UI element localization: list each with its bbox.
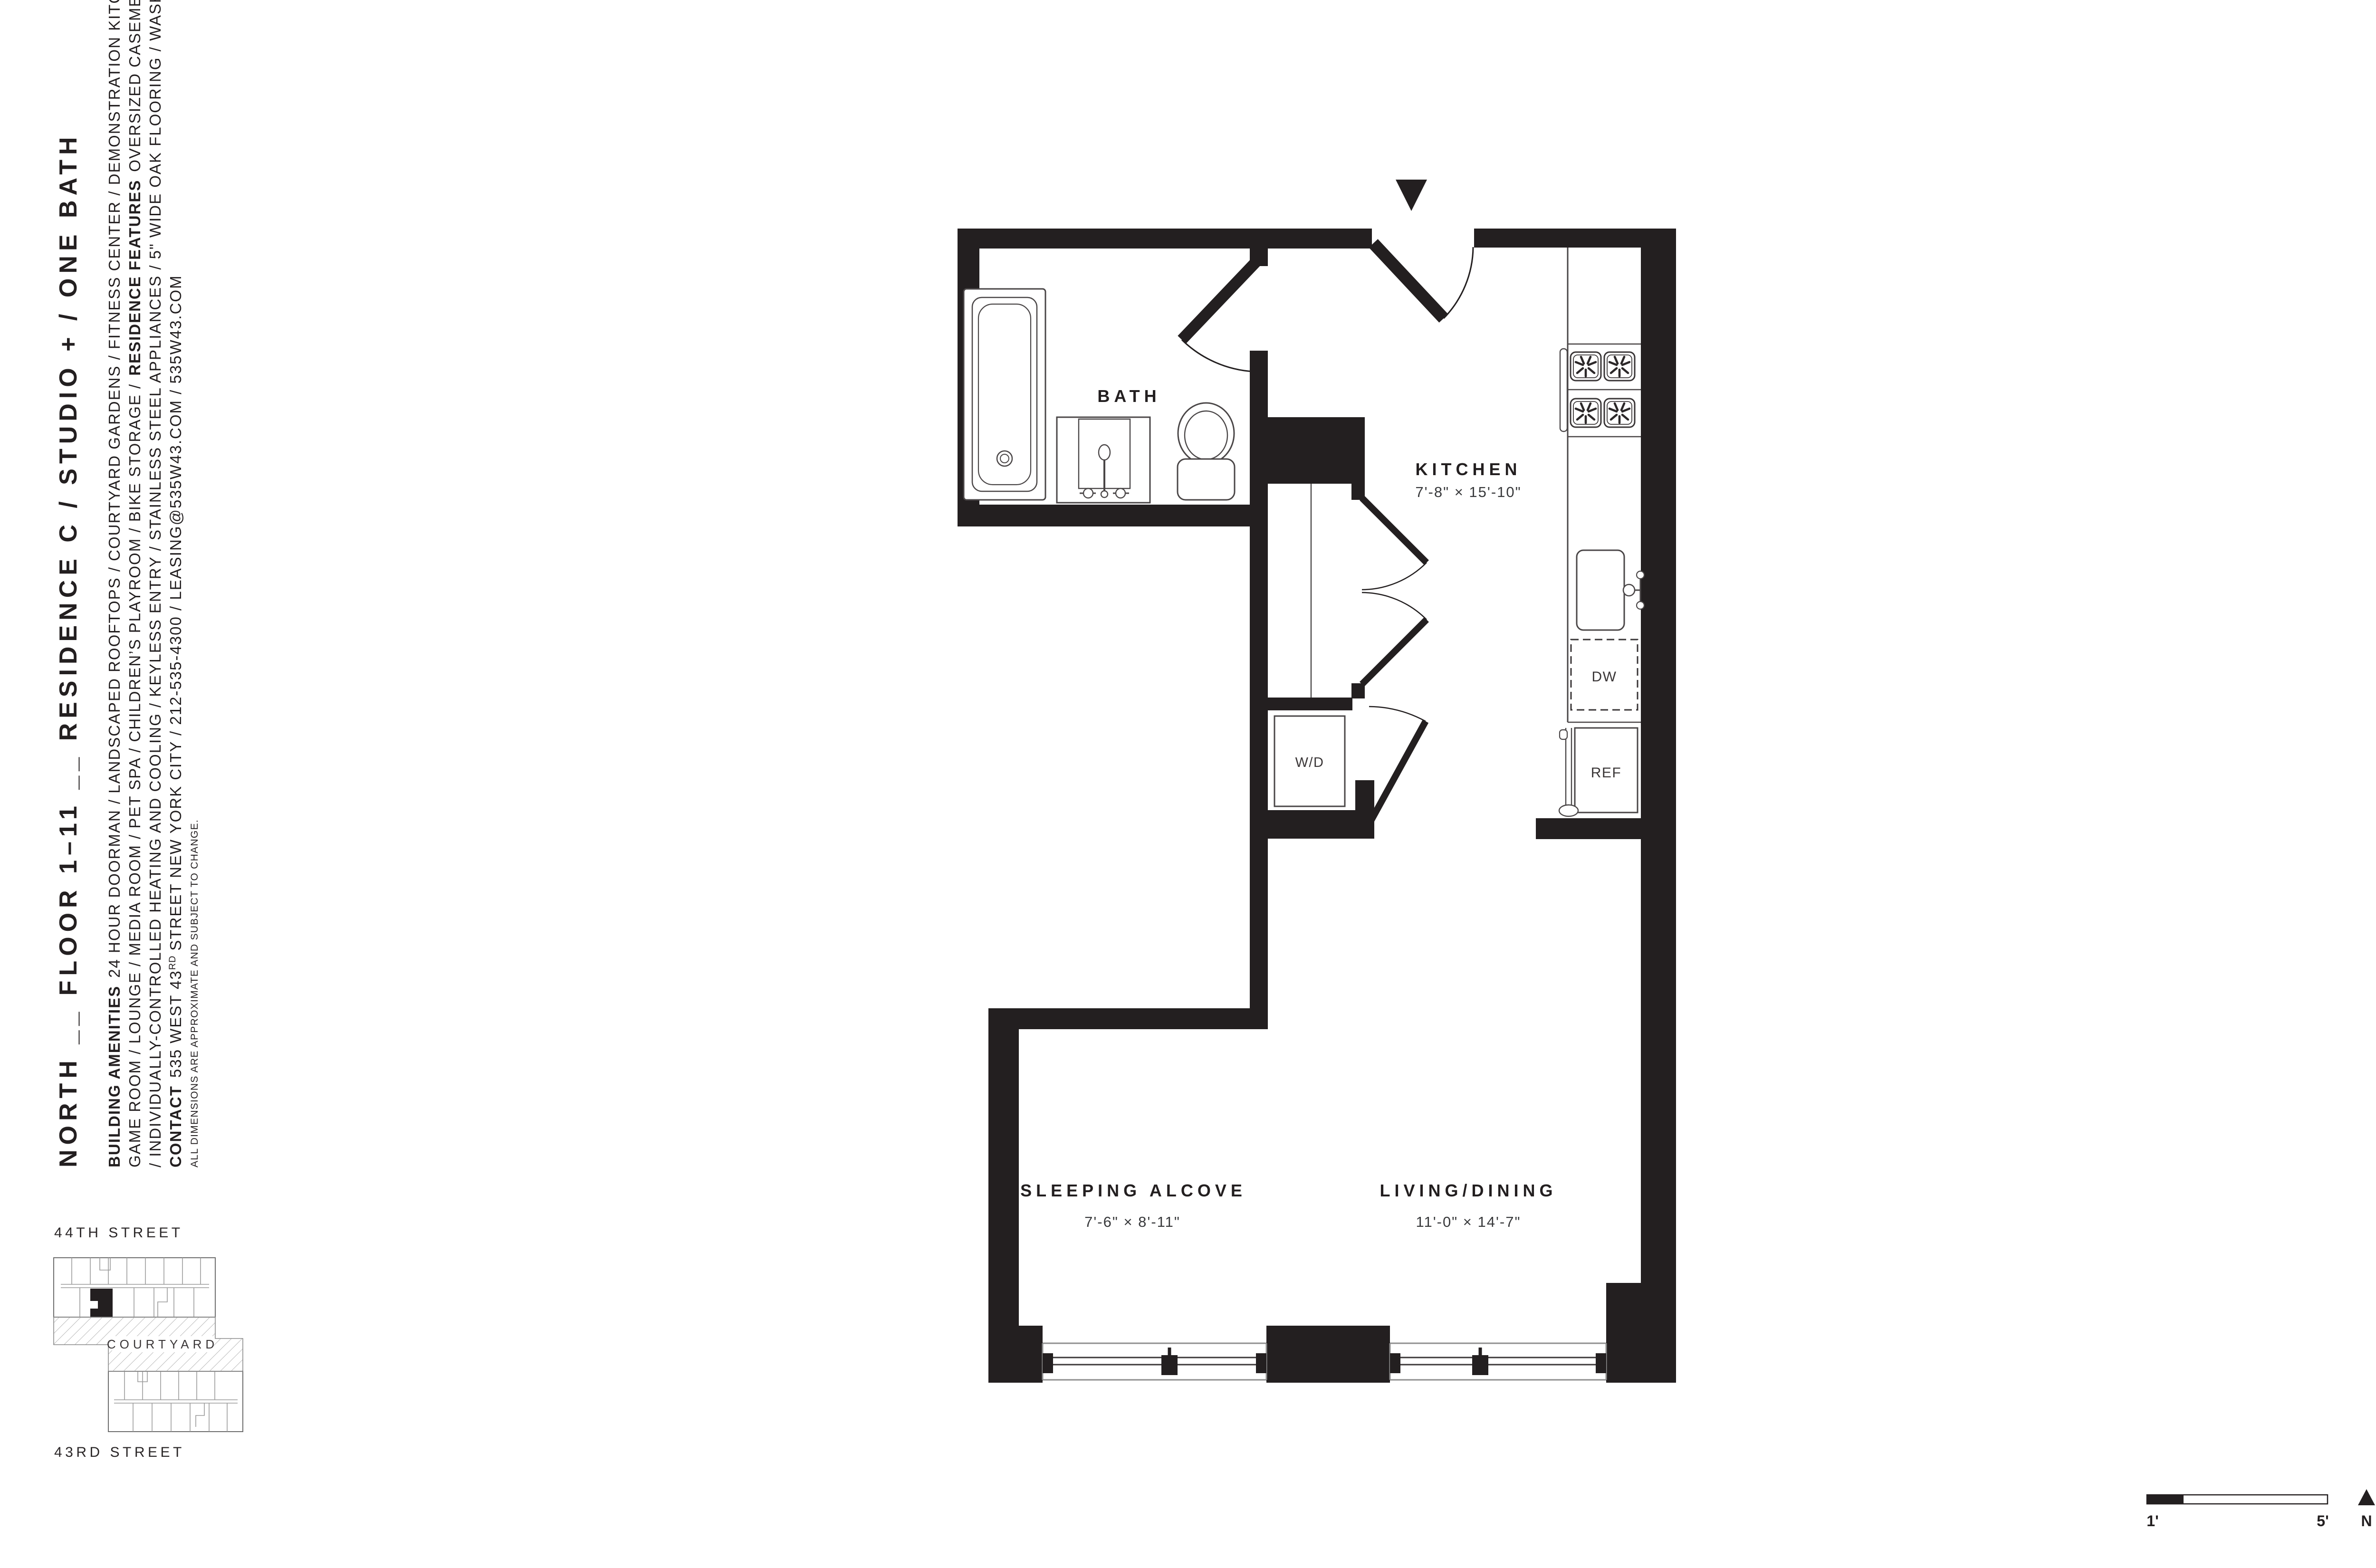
refrigerator-label: REF (1591, 765, 1622, 781)
entry-arrow-icon (1396, 180, 1427, 211)
bath-door-leaf (1182, 259, 1259, 340)
courtyard-label: COURTYARD (107, 1337, 218, 1351)
living-dining-dims: 11'-0" × 14'-7" (1416, 1214, 1521, 1230)
pier-bottom-right (1606, 1283, 1676, 1383)
scale-start-label: 1' (2146, 1512, 2158, 1530)
wall-closet-north-block (1264, 417, 1365, 484)
floorplan-sheet: NORTH __ FLOOR 1–11 __ RESIDENCE C / STU… (0, 0, 2376, 1568)
bath-door-swing-arc (1182, 340, 1254, 372)
sleeping-alcove-dims: 7'-6" × 8'-11" (1084, 1214, 1180, 1230)
wall-alcove-top (988, 1008, 1268, 1029)
kitchen-fixtures (1274, 248, 1644, 816)
bath-label: BATH (1097, 386, 1160, 406)
window-jamb (1256, 1353, 1266, 1373)
scale-end-label: 5' (2317, 1512, 2328, 1530)
wall-right (1641, 229, 1676, 1285)
kitchen-label: KITCHEN (1416, 459, 1522, 479)
wall-wd-north (1264, 698, 1352, 710)
window-jamb (1390, 1353, 1400, 1373)
floor-plan-canvas: BATH KITCHEN 7'-8" × 15'-10" SLEEPING AL… (0, 0, 2376, 1568)
window-jamb (1596, 1353, 1606, 1373)
wd-door-swing-arc (1369, 707, 1426, 721)
wall-top-left (958, 229, 1372, 249)
entry-door-leaf (1373, 243, 1444, 318)
wall-wd-stub (1355, 780, 1374, 810)
closet-door-leaf-bottom (1362, 620, 1427, 684)
wall-closet-stub-bottom (1351, 683, 1365, 698)
window-mullion (1472, 1355, 1488, 1375)
closet-door-arc-top (1362, 563, 1427, 590)
scale-bar: 1' 5' N (2146, 1489, 2375, 1530)
north-label: N (2361, 1512, 2372, 1530)
keymap-south-building (108, 1371, 243, 1432)
window-jamb (1043, 1353, 1053, 1373)
wall-under-ref (1536, 818, 1676, 839)
bath-vanity-sink (1057, 417, 1150, 503)
wd-door-leaf (1368, 721, 1426, 827)
scale-bar-filled-segment (2147, 1495, 2184, 1504)
closet-door-leaf-top (1362, 498, 1427, 563)
entry-door-swing-arc (1444, 247, 1473, 318)
pier-bottom-center (1266, 1326, 1390, 1383)
pier-bottom-left (988, 1326, 1043, 1383)
stove-front-edge (1560, 349, 1567, 431)
washer-dryer-label: W/D (1295, 755, 1324, 770)
dishwasher-label: DW (1592, 669, 1617, 685)
sleeping-alcove-label: SLEEPING ALCOVE (1020, 1181, 1246, 1200)
kitchen-dims: 7'-8" × 15'-10" (1415, 484, 1521, 500)
bathtub (964, 289, 1045, 500)
north-arrow-icon (2358, 1489, 2375, 1505)
toilet (1178, 403, 1235, 500)
key-map: 44TH STREET (54, 1225, 243, 1460)
closet-door-arc-bottom (1362, 593, 1427, 620)
keymap-highlighted-unit (90, 1289, 113, 1317)
wall-bath-bottom (958, 505, 1268, 526)
kitchen-sink (1577, 550, 1644, 630)
living-dining-label: LIVING/DINING (1380, 1181, 1557, 1200)
window-mullion (1161, 1355, 1178, 1375)
street-label-44th: 44TH STREET (54, 1225, 183, 1241)
street-label-43rd: 43RD STREET (54, 1444, 185, 1460)
wall-wd-south (1250, 810, 1374, 839)
